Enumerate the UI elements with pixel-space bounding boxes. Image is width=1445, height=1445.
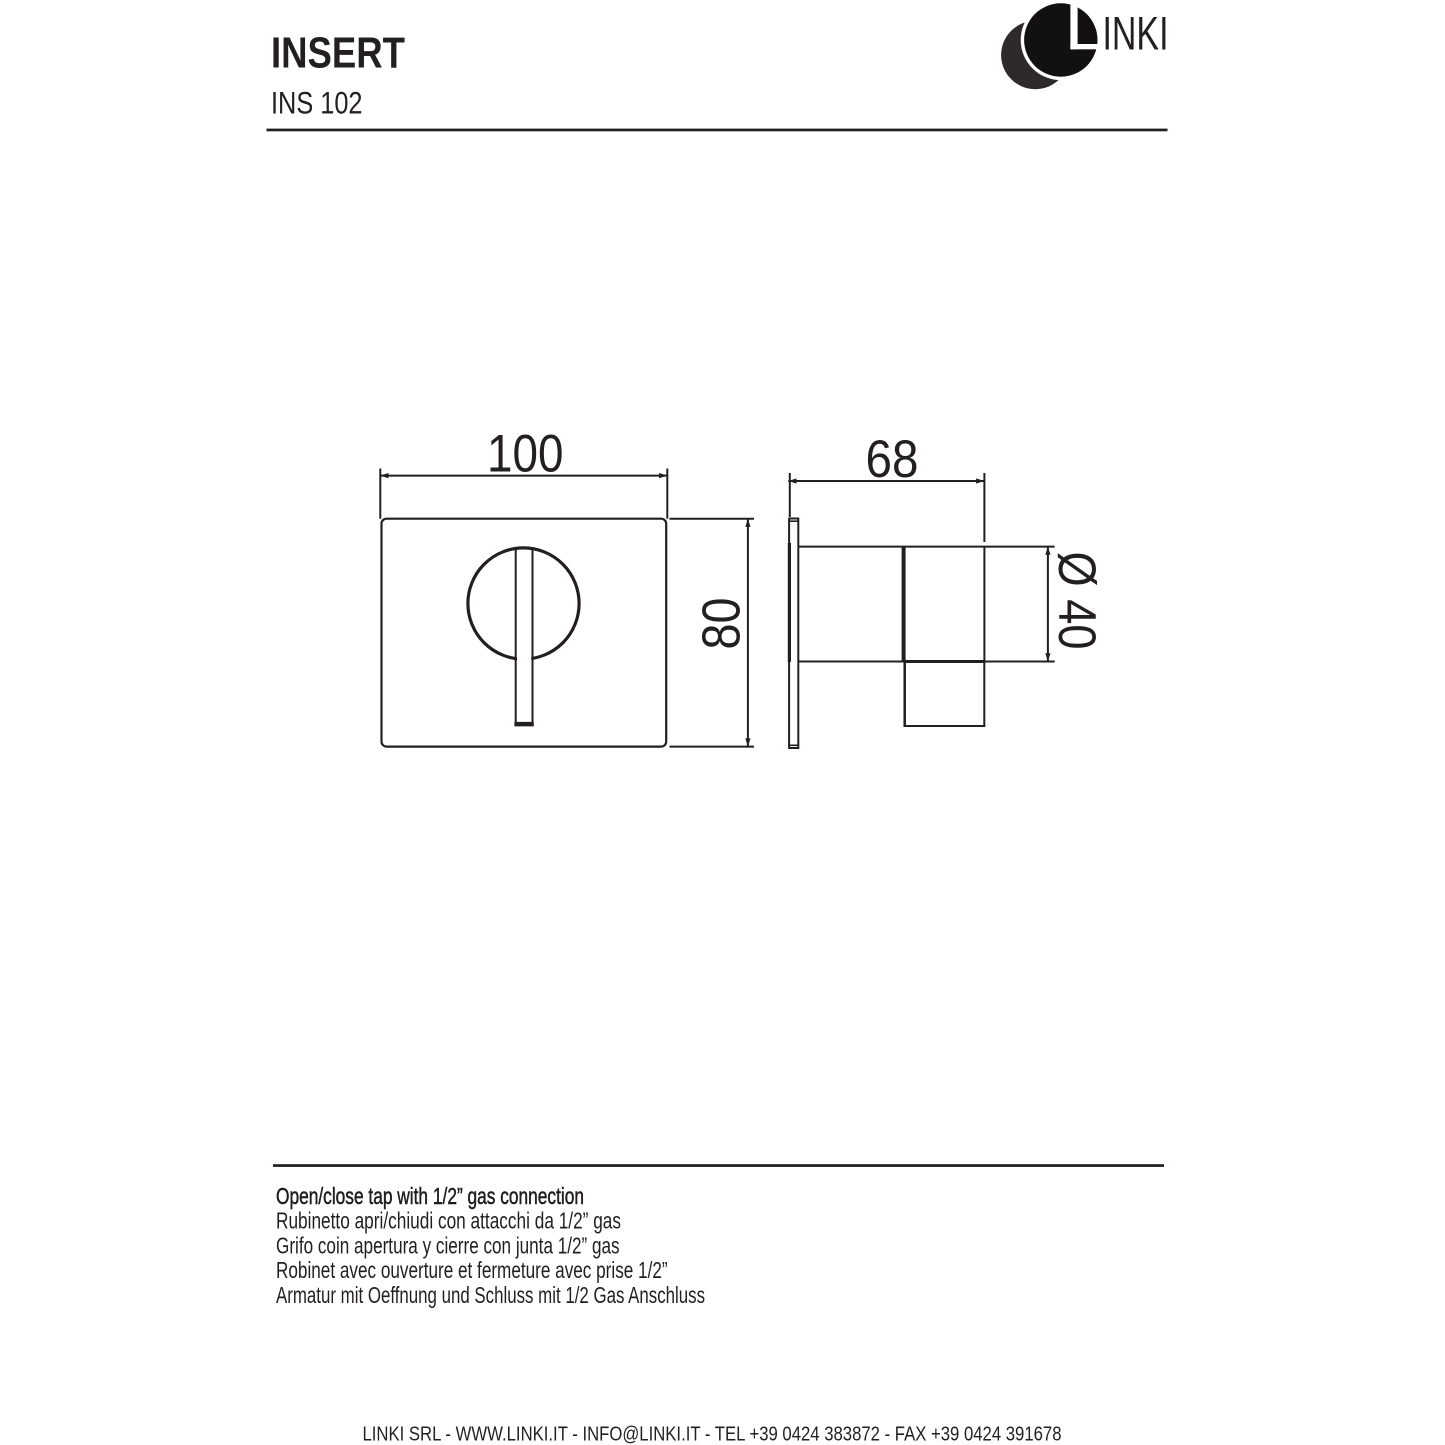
svg-text:Rubinetto apri/chiudi con atta: Rubinetto apri/chiudi con attacchi da 1/… (276, 1208, 621, 1234)
svg-text:80: 80 (691, 598, 751, 650)
svg-text:Robinet avec ouverture et ferm: Robinet avec ouverture et fermeture avec… (276, 1257, 668, 1283)
svg-text:Grifo coin apertura y cierre c: Grifo coin apertura y cierre con junta 1… (276, 1232, 620, 1258)
svg-text:INKI: INKI (1103, 8, 1169, 61)
svg-text:INS 102: INS 102 (271, 84, 363, 120)
svg-text:INSERT: INSERT (271, 29, 405, 78)
svg-text:LINKI SRL - WWW.LINKI.IT - INF: LINKI SRL - WWW.LINKI.IT - INFO@LINKI.IT… (363, 1424, 1062, 1445)
svg-text:Armatur mit Oeffnung und Schlu: Armatur mit Oeffnung und Schluss mit 1/2… (276, 1282, 705, 1308)
svg-text:Ø 40: Ø 40 (1047, 552, 1106, 650)
svg-text:Open/close tap with 1/2” gas c: Open/close tap with 1/2” gas connection (276, 1183, 584, 1209)
